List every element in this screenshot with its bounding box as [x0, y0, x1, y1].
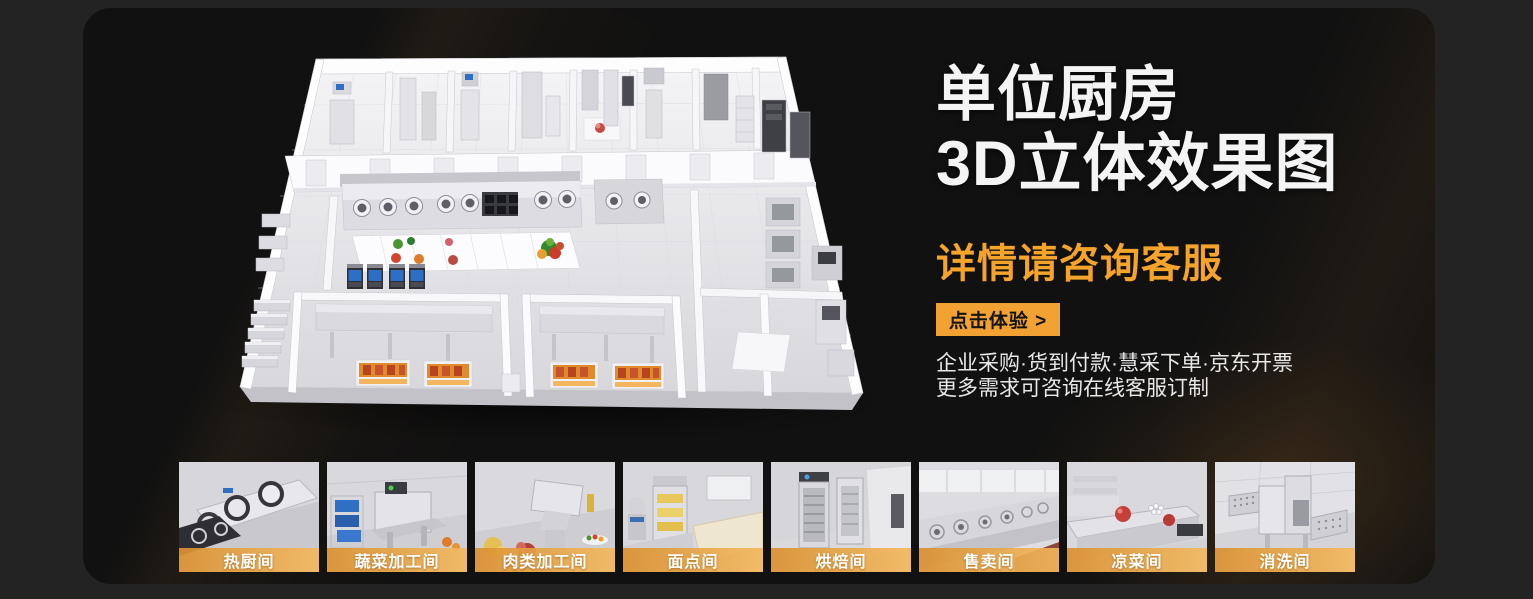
gallery-item-label: 凉菜间	[1067, 548, 1207, 572]
gallery-item-meat-processing[interactable]: 肉类加工间	[475, 462, 615, 572]
hero-text-block: 单位厨房 3D立体效果图 详情请咨询客服 点击体验 > 企业采购·货到付款·慧采…	[936, 62, 1406, 401]
hero-desc-line-1: 企业采购·货到付款·慧采下单·京东开票	[936, 351, 1406, 376]
kitchen-floorplan-3d-render	[225, 15, 885, 445]
cook-line	[340, 171, 664, 230]
gallery-item-serving-room[interactable]: 售卖间	[919, 462, 1059, 572]
hero-title-line-2: 3D立体效果图	[936, 128, 1406, 200]
gallery-item-hot-kitchen[interactable]: 热厨间	[179, 462, 319, 572]
gallery-item-vegetable-processing[interactable]: 蔬菜加工间	[327, 462, 467, 572]
hero-subtitle: 详情请咨询客服	[936, 242, 1406, 286]
gallery-item-cold-dish-room[interactable]: 凉菜间	[1067, 462, 1207, 572]
gallery-item-label: 蔬菜加工间	[327, 548, 467, 572]
cta-button[interactable]: 点击体验 >	[936, 303, 1060, 336]
gallery-item-label: 售卖间	[919, 548, 1059, 572]
hero-desc-line-2: 更多需求可咨询在线客服订制	[936, 376, 1406, 401]
gallery-item-label: 热厨间	[179, 548, 319, 572]
gallery-item-label: 烘焙间	[771, 548, 911, 572]
gallery-item-label: 肉类加工间	[475, 548, 615, 572]
prep-table	[352, 232, 580, 272]
room-gallery: 热厨间 蔬菜加工间	[179, 462, 1355, 572]
gallery-item-label: 消洗间	[1215, 548, 1355, 572]
promo-banner: 单位厨房 3D立体效果图 详情请咨询客服 点击体验 > 企业采购·货到付款·慧采…	[0, 0, 1533, 599]
gallery-item-pastry-room[interactable]: 面点间	[623, 462, 763, 572]
hero-title-line-1: 单位厨房	[936, 62, 1406, 128]
gallery-item-label: 面点间	[623, 548, 763, 572]
gallery-item-baking-room[interactable]: 烘焙间	[771, 462, 911, 572]
gallery-item-washing-room[interactable]: 消洗间	[1215, 462, 1355, 572]
